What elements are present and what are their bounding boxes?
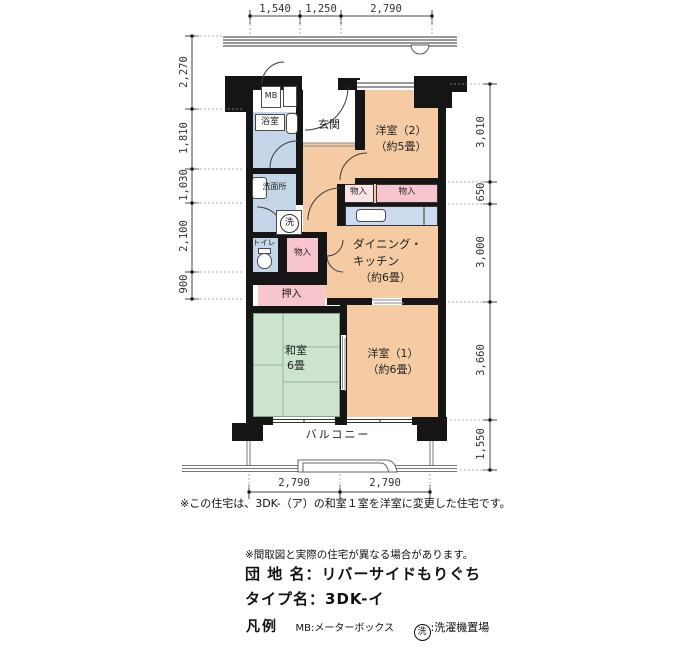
balcony-railing <box>182 441 457 472</box>
kitchen-sink-icon <box>356 209 386 222</box>
type-name-label: タイプ名： <box>245 590 325 608</box>
label-japanese-size: 6畳 <box>266 360 326 372</box>
label-mb: MB <box>261 92 281 101</box>
label-western2: 洋室（2） <box>366 125 436 137</box>
type-name-value: 3DK-イ <box>325 590 384 608</box>
washer-circle: 洗 <box>280 214 299 233</box>
label-storage1: 物入 <box>343 188 374 197</box>
disclaimer: ※間取図と実際の住宅が異なる場合があります。 <box>245 547 473 562</box>
wall <box>340 203 438 206</box>
wall-right <box>438 96 446 425</box>
dim-right-1: 3,010 <box>475 110 487 154</box>
dimension-left <box>185 35 244 301</box>
window-top-west2 <box>357 80 414 90</box>
dim-left-4: 2,100 <box>178 214 190 258</box>
label-balcony: バルコニー <box>280 429 396 441</box>
dim-right-2: 650 <box>475 170 487 214</box>
duct-box <box>283 86 297 107</box>
wall-entrance-west2 <box>355 90 365 150</box>
sliding-door-gap <box>341 335 346 390</box>
wall <box>247 272 327 285</box>
label-bath: 浴室 <box>255 118 285 128</box>
wall-bottom <box>335 417 347 425</box>
balcony-pillar-left <box>232 423 263 441</box>
window-bottom-west1 <box>347 417 412 425</box>
sliding-door-gap <box>372 298 402 305</box>
floor-plan-sheet: 洗 <box>0 0 700 650</box>
dim-right-4: 3,660 <box>475 338 487 382</box>
toilet-bowl-icon <box>257 253 272 269</box>
label-dk-line1: ダイニング・ <box>353 238 433 251</box>
label-washroom: 洗面所 <box>253 183 296 192</box>
dim-left-3: 1,030 <box>178 163 190 207</box>
label-western1: 洋室（1） <box>358 348 428 360</box>
wall <box>225 76 246 112</box>
corridor-stripes <box>223 37 457 46</box>
label-western2-size: （約5畳） <box>366 141 436 153</box>
legend-line: 凡例 MB:メーターボックス 洗:洗濯機置場 <box>246 616 489 641</box>
label-closet: 押入 <box>258 289 325 300</box>
label-storage3: 物入 <box>287 249 318 258</box>
type-name-line: タイプ名：3DK-イ <box>245 588 384 609</box>
wall-service-hall <box>296 90 303 205</box>
corridor-notch <box>411 45 429 54</box>
wall-bath-washroom <box>253 168 296 174</box>
dim-top-1: 1,540 <box>253 3 297 15</box>
wall-left <box>246 76 253 425</box>
legend-title: 凡例 <box>246 619 278 635</box>
plan-note: ※この住宅は、3DK-（ア）の和室１室を洋室に変更した住宅です。 <box>180 495 511 511</box>
label-dk-line2: キッチン <box>353 255 433 268</box>
label-japanese: 和室 <box>266 345 326 357</box>
legend-wash-icon: 洗 <box>414 624 431 641</box>
dim-top-2: 1,250 <box>299 3 343 15</box>
dim-bottom-2: 2,790 <box>363 477 407 489</box>
dim-left-2: 1,810 <box>178 116 190 160</box>
estate-name-value: リバーサイドもりぐち <box>321 565 481 583</box>
dim-right-5: 1,550 <box>475 422 487 466</box>
dim-left-5: 900 <box>178 262 190 306</box>
label-toilet: トイレ <box>249 239 279 247</box>
wall-top-right <box>414 76 452 108</box>
wall <box>355 178 438 184</box>
legend-wash-label: :洗濯機置場 <box>431 621 490 634</box>
dim-right-3: 3,000 <box>475 230 487 274</box>
balcony-pillar-right <box>417 423 447 441</box>
wall-japanese-top <box>246 306 340 313</box>
estate-name-line: 団 地 名：リバーサイドもりぐち <box>245 563 481 584</box>
wall <box>452 76 467 92</box>
bathtub-icon <box>286 113 298 134</box>
dim-left-1: 2,270 <box>178 50 190 94</box>
room-entrance-floor <box>303 90 355 143</box>
label-western1-size: （約6畳） <box>358 364 428 376</box>
wall <box>278 238 287 272</box>
estate-name-label: 団 地 名： <box>245 565 321 583</box>
label-dk-size: （約6畳） <box>360 272 440 284</box>
dim-bottom-1: 2,790 <box>272 477 316 489</box>
legend-mb: MB:メーターボックス <box>296 623 395 634</box>
dimension-right <box>448 83 497 472</box>
label-entrance: 玄関 <box>303 119 355 131</box>
wall <box>318 238 327 272</box>
label-storage2: 物入 <box>376 188 438 197</box>
room-western1-floor <box>347 305 438 417</box>
dim-top-3: 2,790 <box>364 3 408 15</box>
wall <box>338 78 360 90</box>
window-bottom-japanese <box>273 417 335 425</box>
